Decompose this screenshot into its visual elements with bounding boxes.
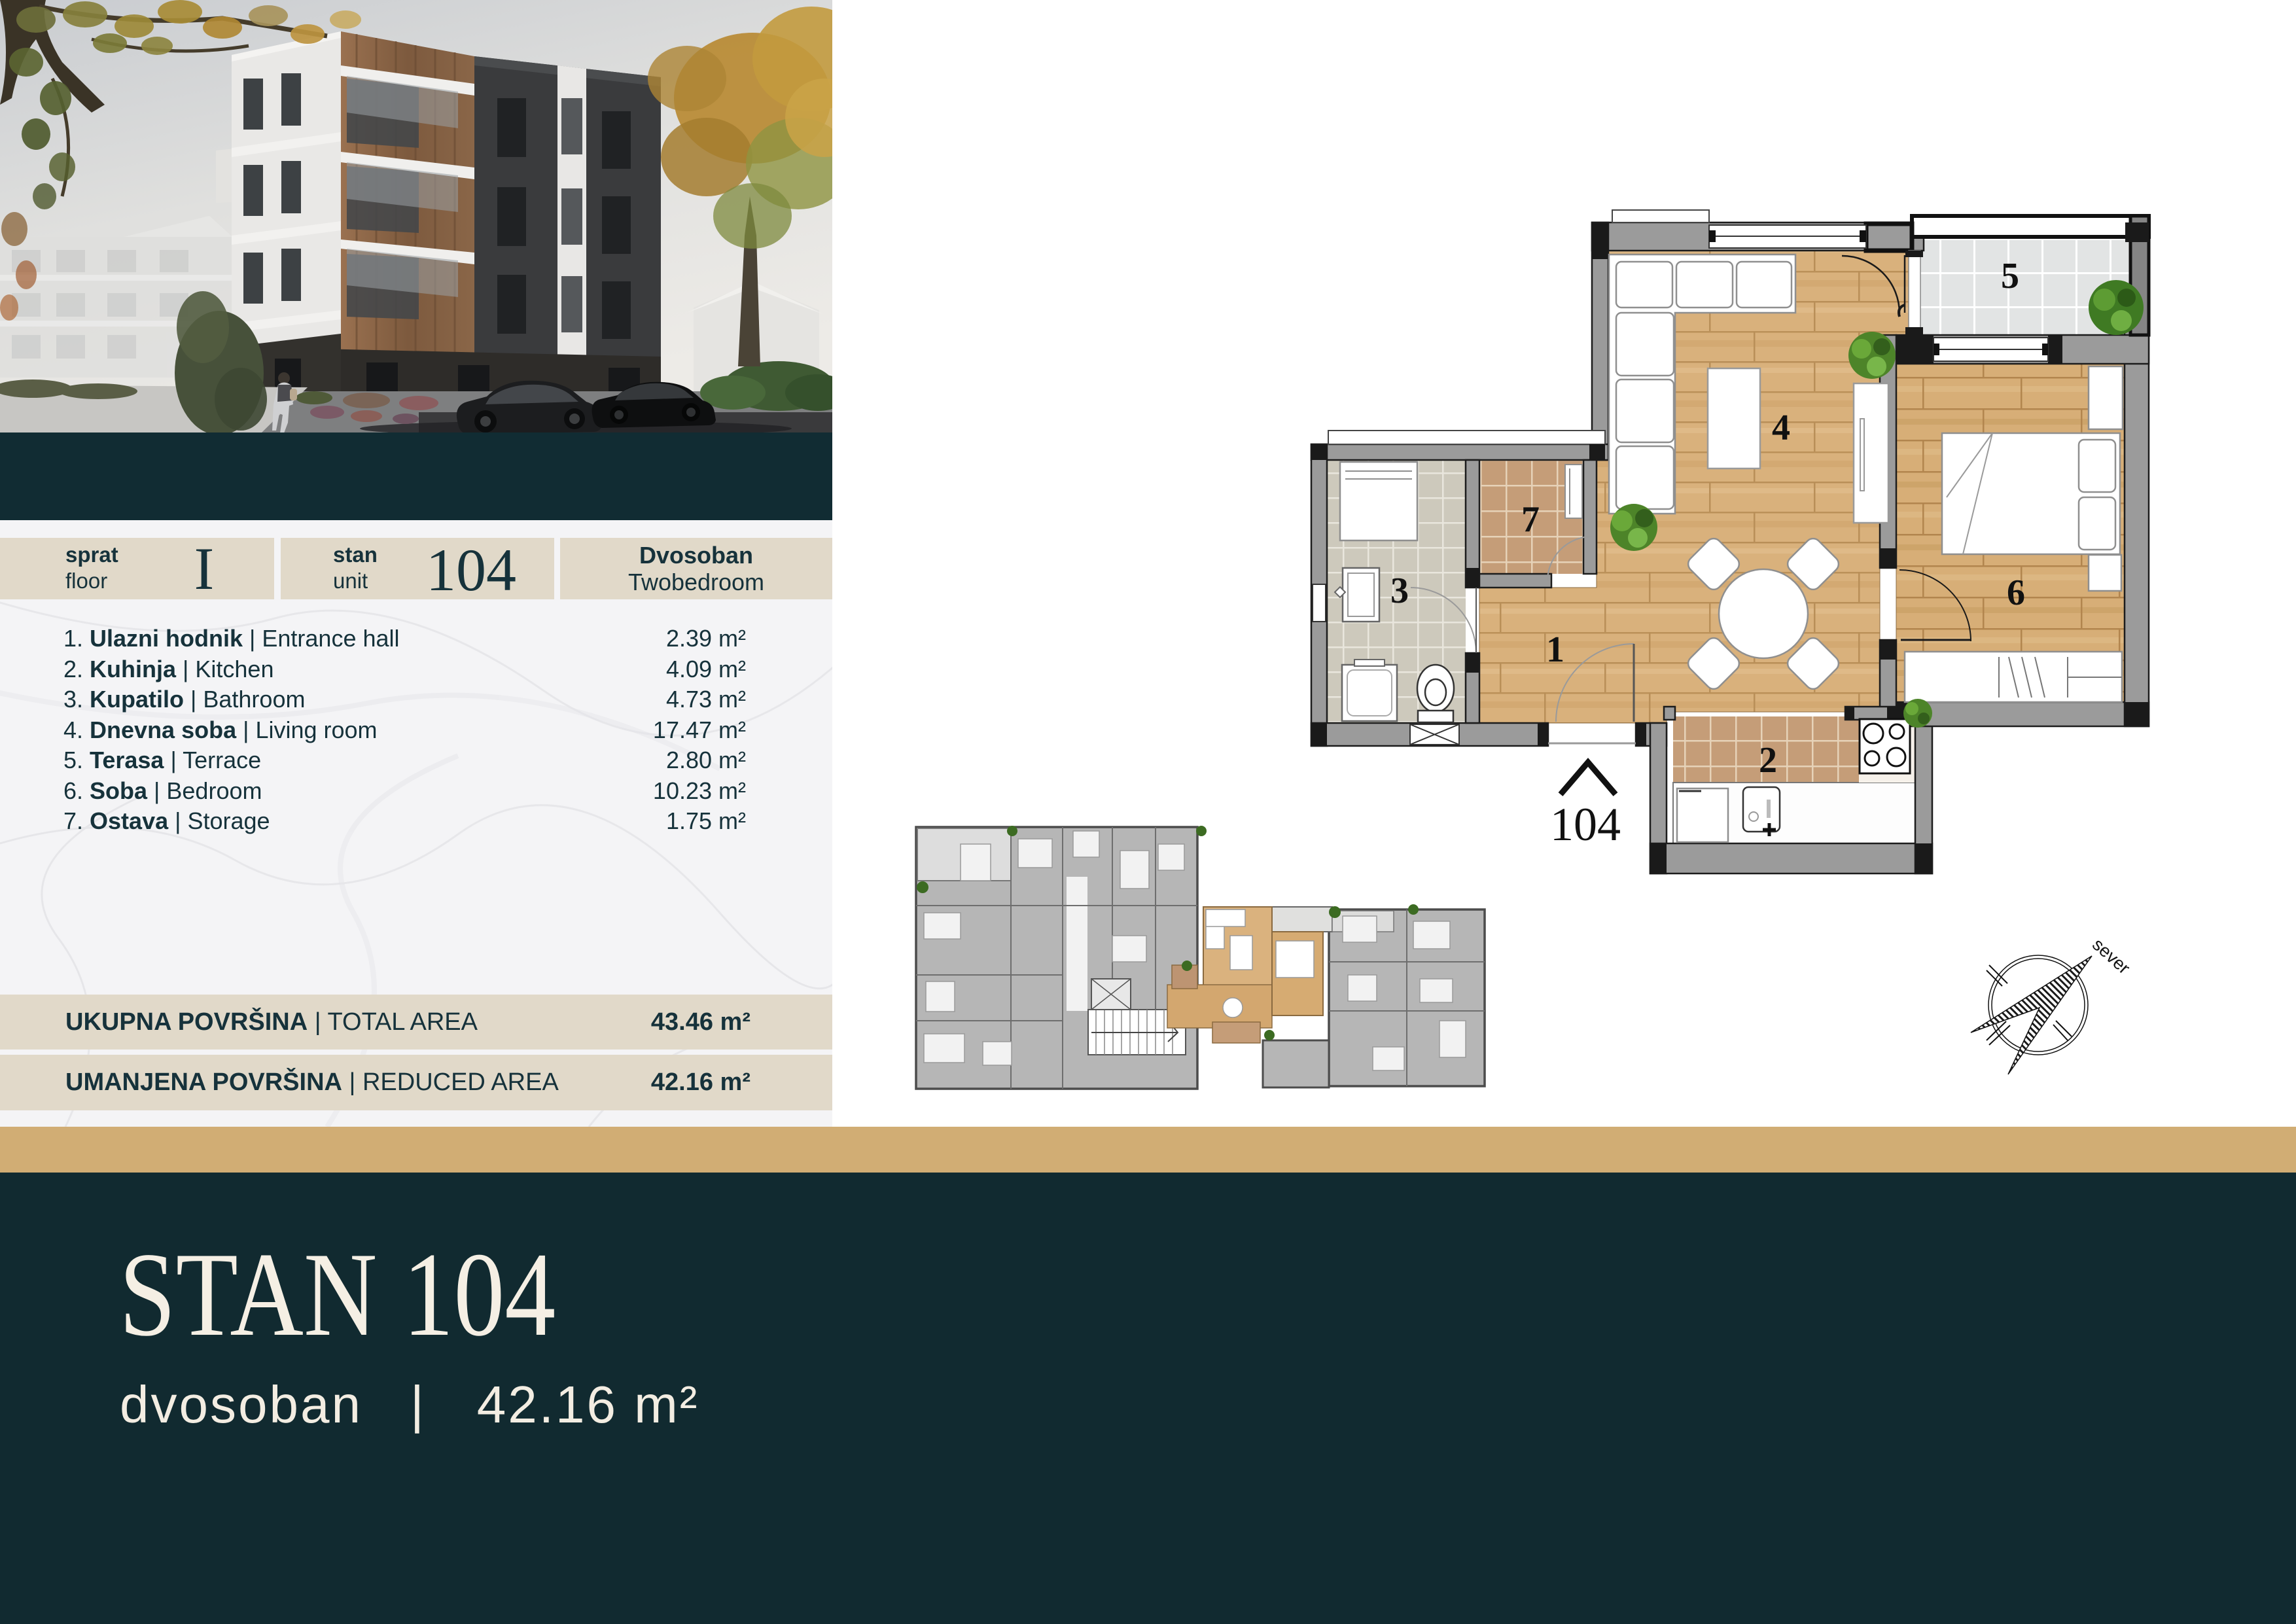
svg-text:4: 4 xyxy=(1772,408,1790,448)
svg-text:104: 104 xyxy=(1550,798,1621,851)
svg-text:2: 2 xyxy=(1759,740,1777,781)
svg-text:5: 5 xyxy=(2001,256,2019,296)
svg-text:7: 7 xyxy=(1521,499,1540,540)
svg-text:1: 1 xyxy=(1546,629,1564,670)
svg-text:6: 6 xyxy=(2007,573,2025,613)
svg-text:sever: sever xyxy=(2089,934,2134,978)
svg-text:3: 3 xyxy=(1390,571,1409,611)
